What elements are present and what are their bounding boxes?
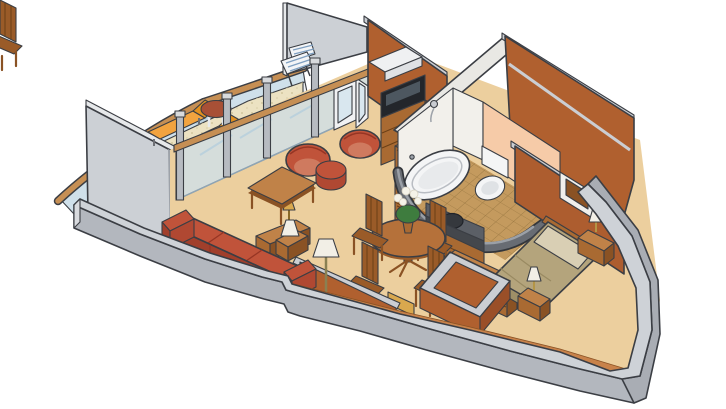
ottoman <box>316 161 346 190</box>
suite-floorplan-svg <box>0 0 726 409</box>
vase-leaves <box>396 205 420 223</box>
dining-chair <box>0 0 22 70</box>
barrel-chair-2 <box>340 130 380 158</box>
floorplan-illustration <box>0 0 726 409</box>
tub-faucet <box>410 155 414 159</box>
front-wall-end-cap <box>74 199 80 228</box>
